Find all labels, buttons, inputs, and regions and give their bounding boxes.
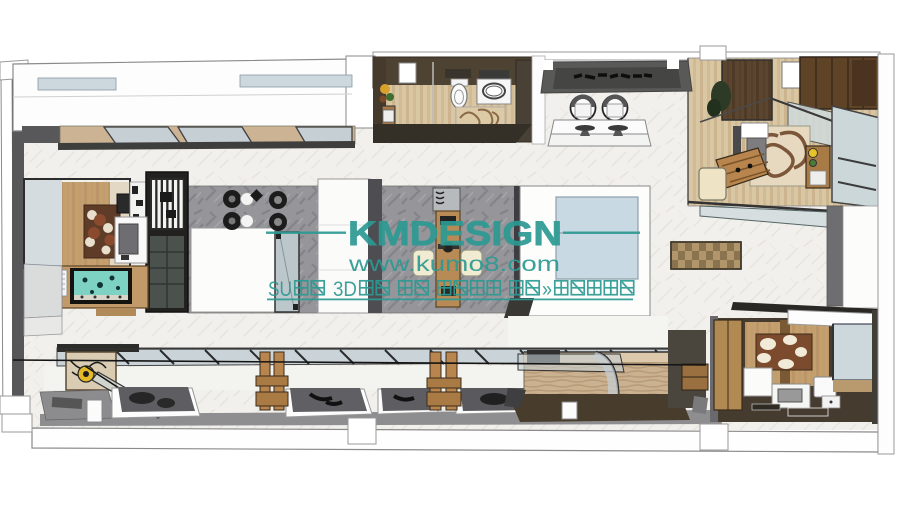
- svg-text:»: »: [542, 278, 552, 301]
- svg-text:www.kumo8.com: www.kumo8.com: [348, 252, 560, 276]
- svg-text:3D: 3D: [333, 278, 357, 301]
- svg-text:SU: SU: [268, 278, 292, 301]
- svg-text:KMDESIGN: KMDESIGN: [348, 215, 562, 253]
